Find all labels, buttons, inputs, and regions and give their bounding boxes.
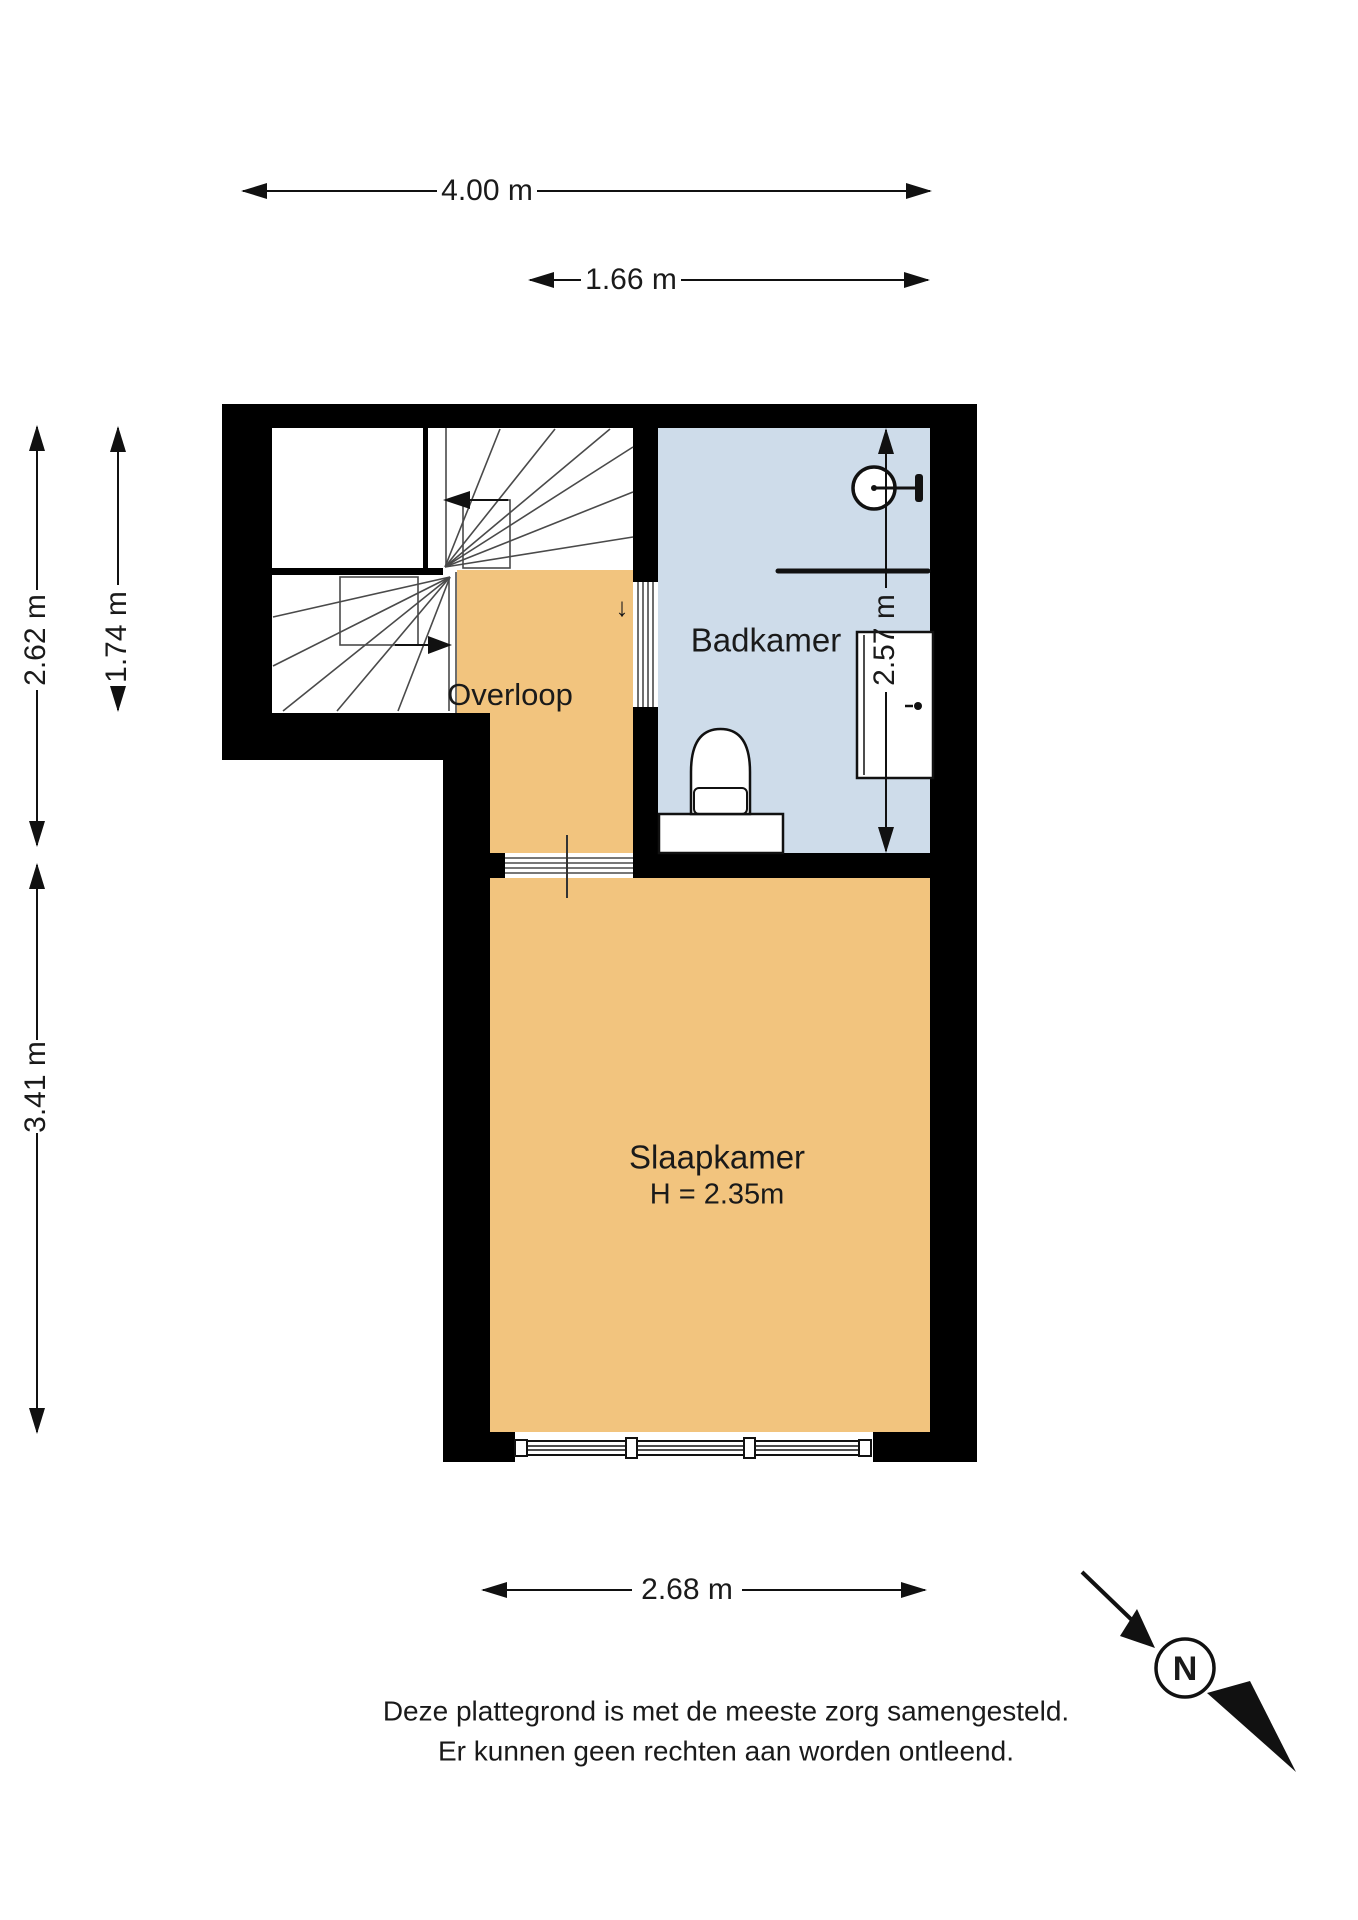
wall-closet-divider xyxy=(423,428,428,568)
wall-bottom-right xyxy=(873,1432,977,1462)
stairs-lower xyxy=(273,572,456,713)
dimension-left-lower: 3.41 m xyxy=(19,1041,52,1133)
wall-left-lower xyxy=(443,713,490,1462)
dimension-left-outer: 2.62 m xyxy=(19,594,52,686)
bathroom-door xyxy=(634,582,658,707)
wall-landing-stub xyxy=(490,853,505,878)
room-floors xyxy=(457,428,930,1432)
wall-right xyxy=(930,404,977,1462)
stairs-up-arrowhead xyxy=(443,491,470,509)
bedroom-height-note: H = 2.35m xyxy=(650,1179,785,1211)
wall-bottom-left xyxy=(443,1432,515,1462)
landing-label: Overloop xyxy=(447,677,573,712)
stairs-direction-arrow: ↓ xyxy=(616,592,629,622)
dimension-top-total: 4.00 m xyxy=(441,174,533,207)
wall-bathroom-bottom xyxy=(633,853,977,878)
landing-floor-lower xyxy=(490,713,633,856)
disclaimer-line-2: Er kunnen geen rechten aan worden ontlee… xyxy=(438,1735,1014,1766)
compass-n-label: N xyxy=(1173,1650,1198,1688)
dimension-top-bathroom: 1.66 m xyxy=(585,263,677,296)
dimension-left-inner: 1.74 m xyxy=(100,591,133,683)
stairs-upper xyxy=(443,428,633,568)
dimension-right-bathroom: 2.57 m xyxy=(868,594,901,686)
bedroom-window xyxy=(515,1438,871,1458)
wall-bathroom-upper xyxy=(633,428,658,582)
wall-bathroom-lower xyxy=(633,707,658,878)
compass-north-icon: N xyxy=(1082,1572,1296,1772)
bedroom-label: Slaapkamer xyxy=(629,1139,805,1176)
floorplan-page: 4.00 m 1.66 m 2.62 m 1.74 m 3.41 m 2.57 … xyxy=(0,0,1358,1920)
dimension-bottom-bedroom: 2.68 m xyxy=(641,1573,733,1606)
wall-top xyxy=(222,404,977,428)
wall-stairs-divider xyxy=(272,568,443,575)
wall-left-upper xyxy=(222,404,272,760)
floorplan-drawing: 4.00 m 1.66 m 2.62 m 1.74 m 3.41 m 2.57 … xyxy=(0,0,1358,1920)
disclaimer-line-1: Deze plattegrond is met de meeste zorg s… xyxy=(383,1695,1069,1726)
bathroom-label: Badkamer xyxy=(691,622,841,659)
